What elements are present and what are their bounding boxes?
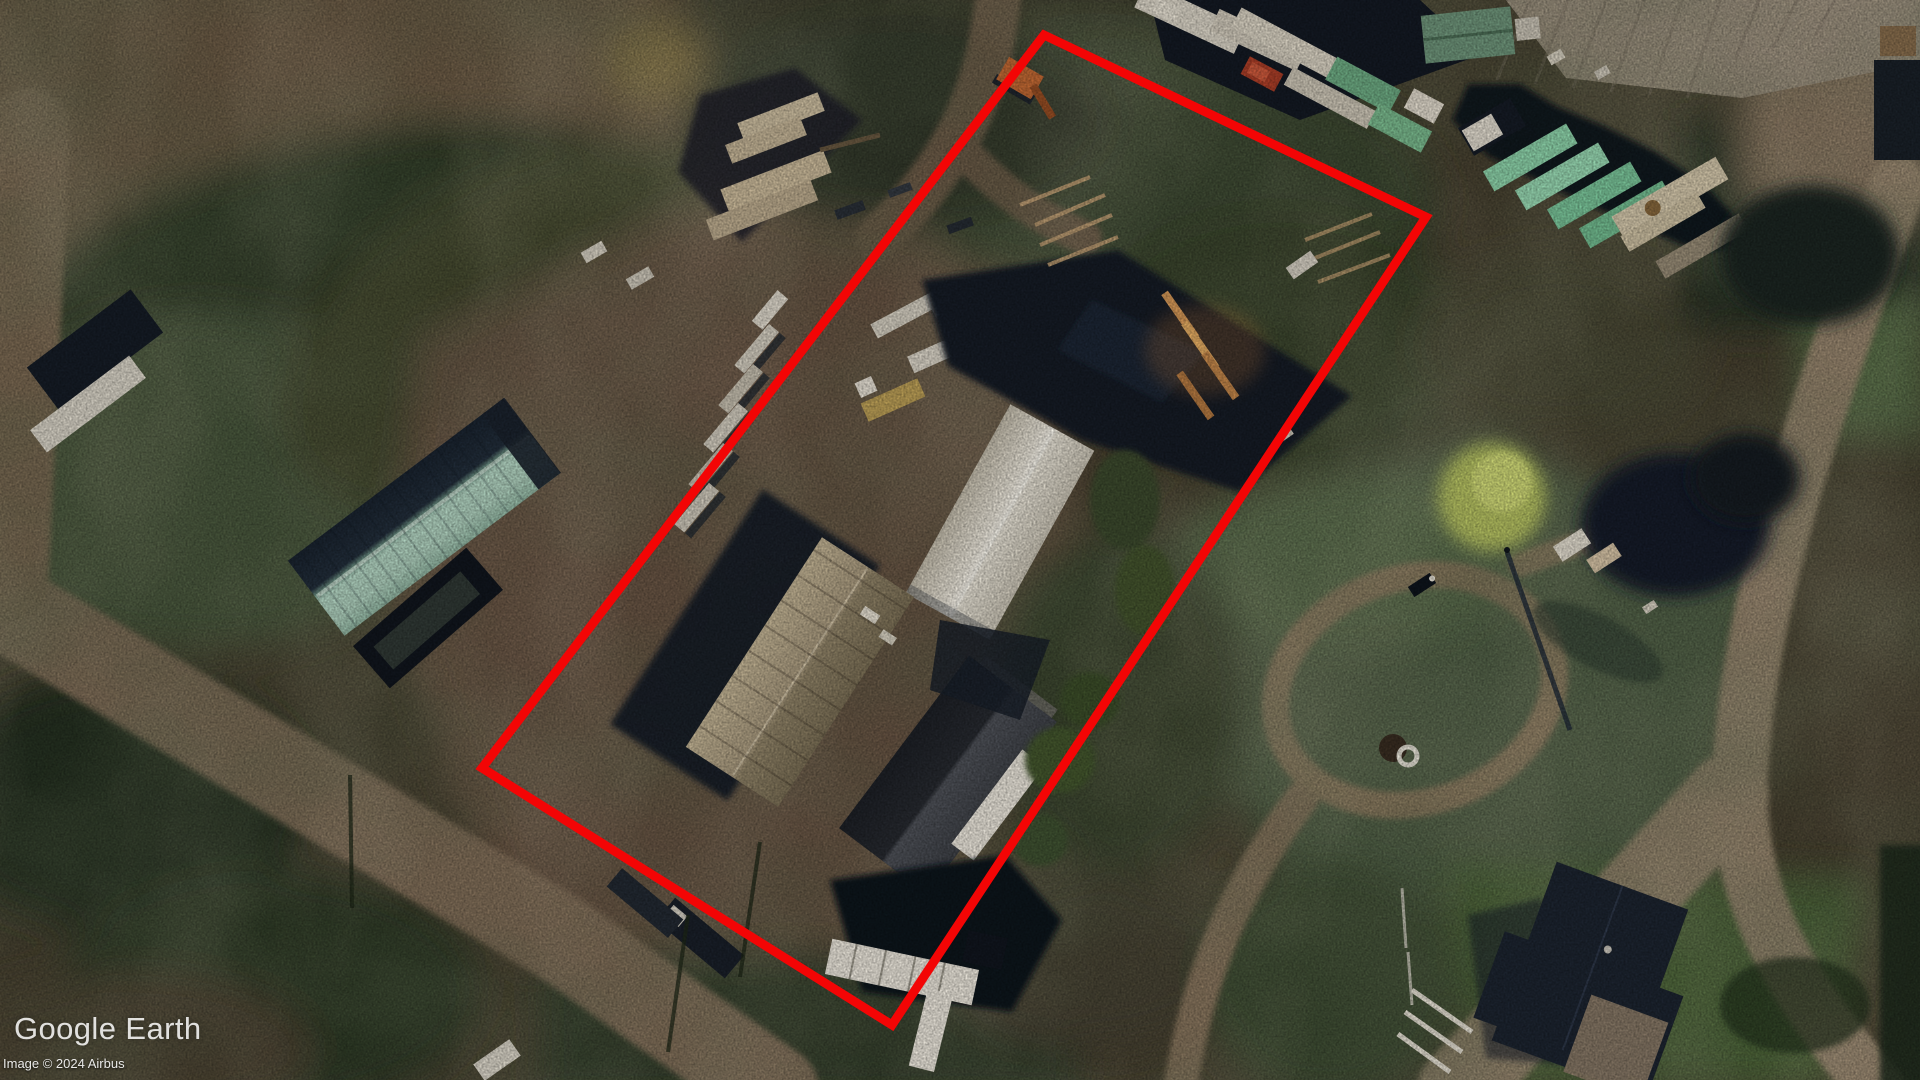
google-earth-viewport[interactable]: Google Earth Image © 2024 Airbus [0, 0, 1920, 1080]
satellite-imagery-canvas[interactable] [0, 0, 1920, 1080]
imagery-attribution: Image © 2024 Airbus [3, 1056, 125, 1071]
google-earth-watermark: Google Earth [14, 1011, 201, 1047]
